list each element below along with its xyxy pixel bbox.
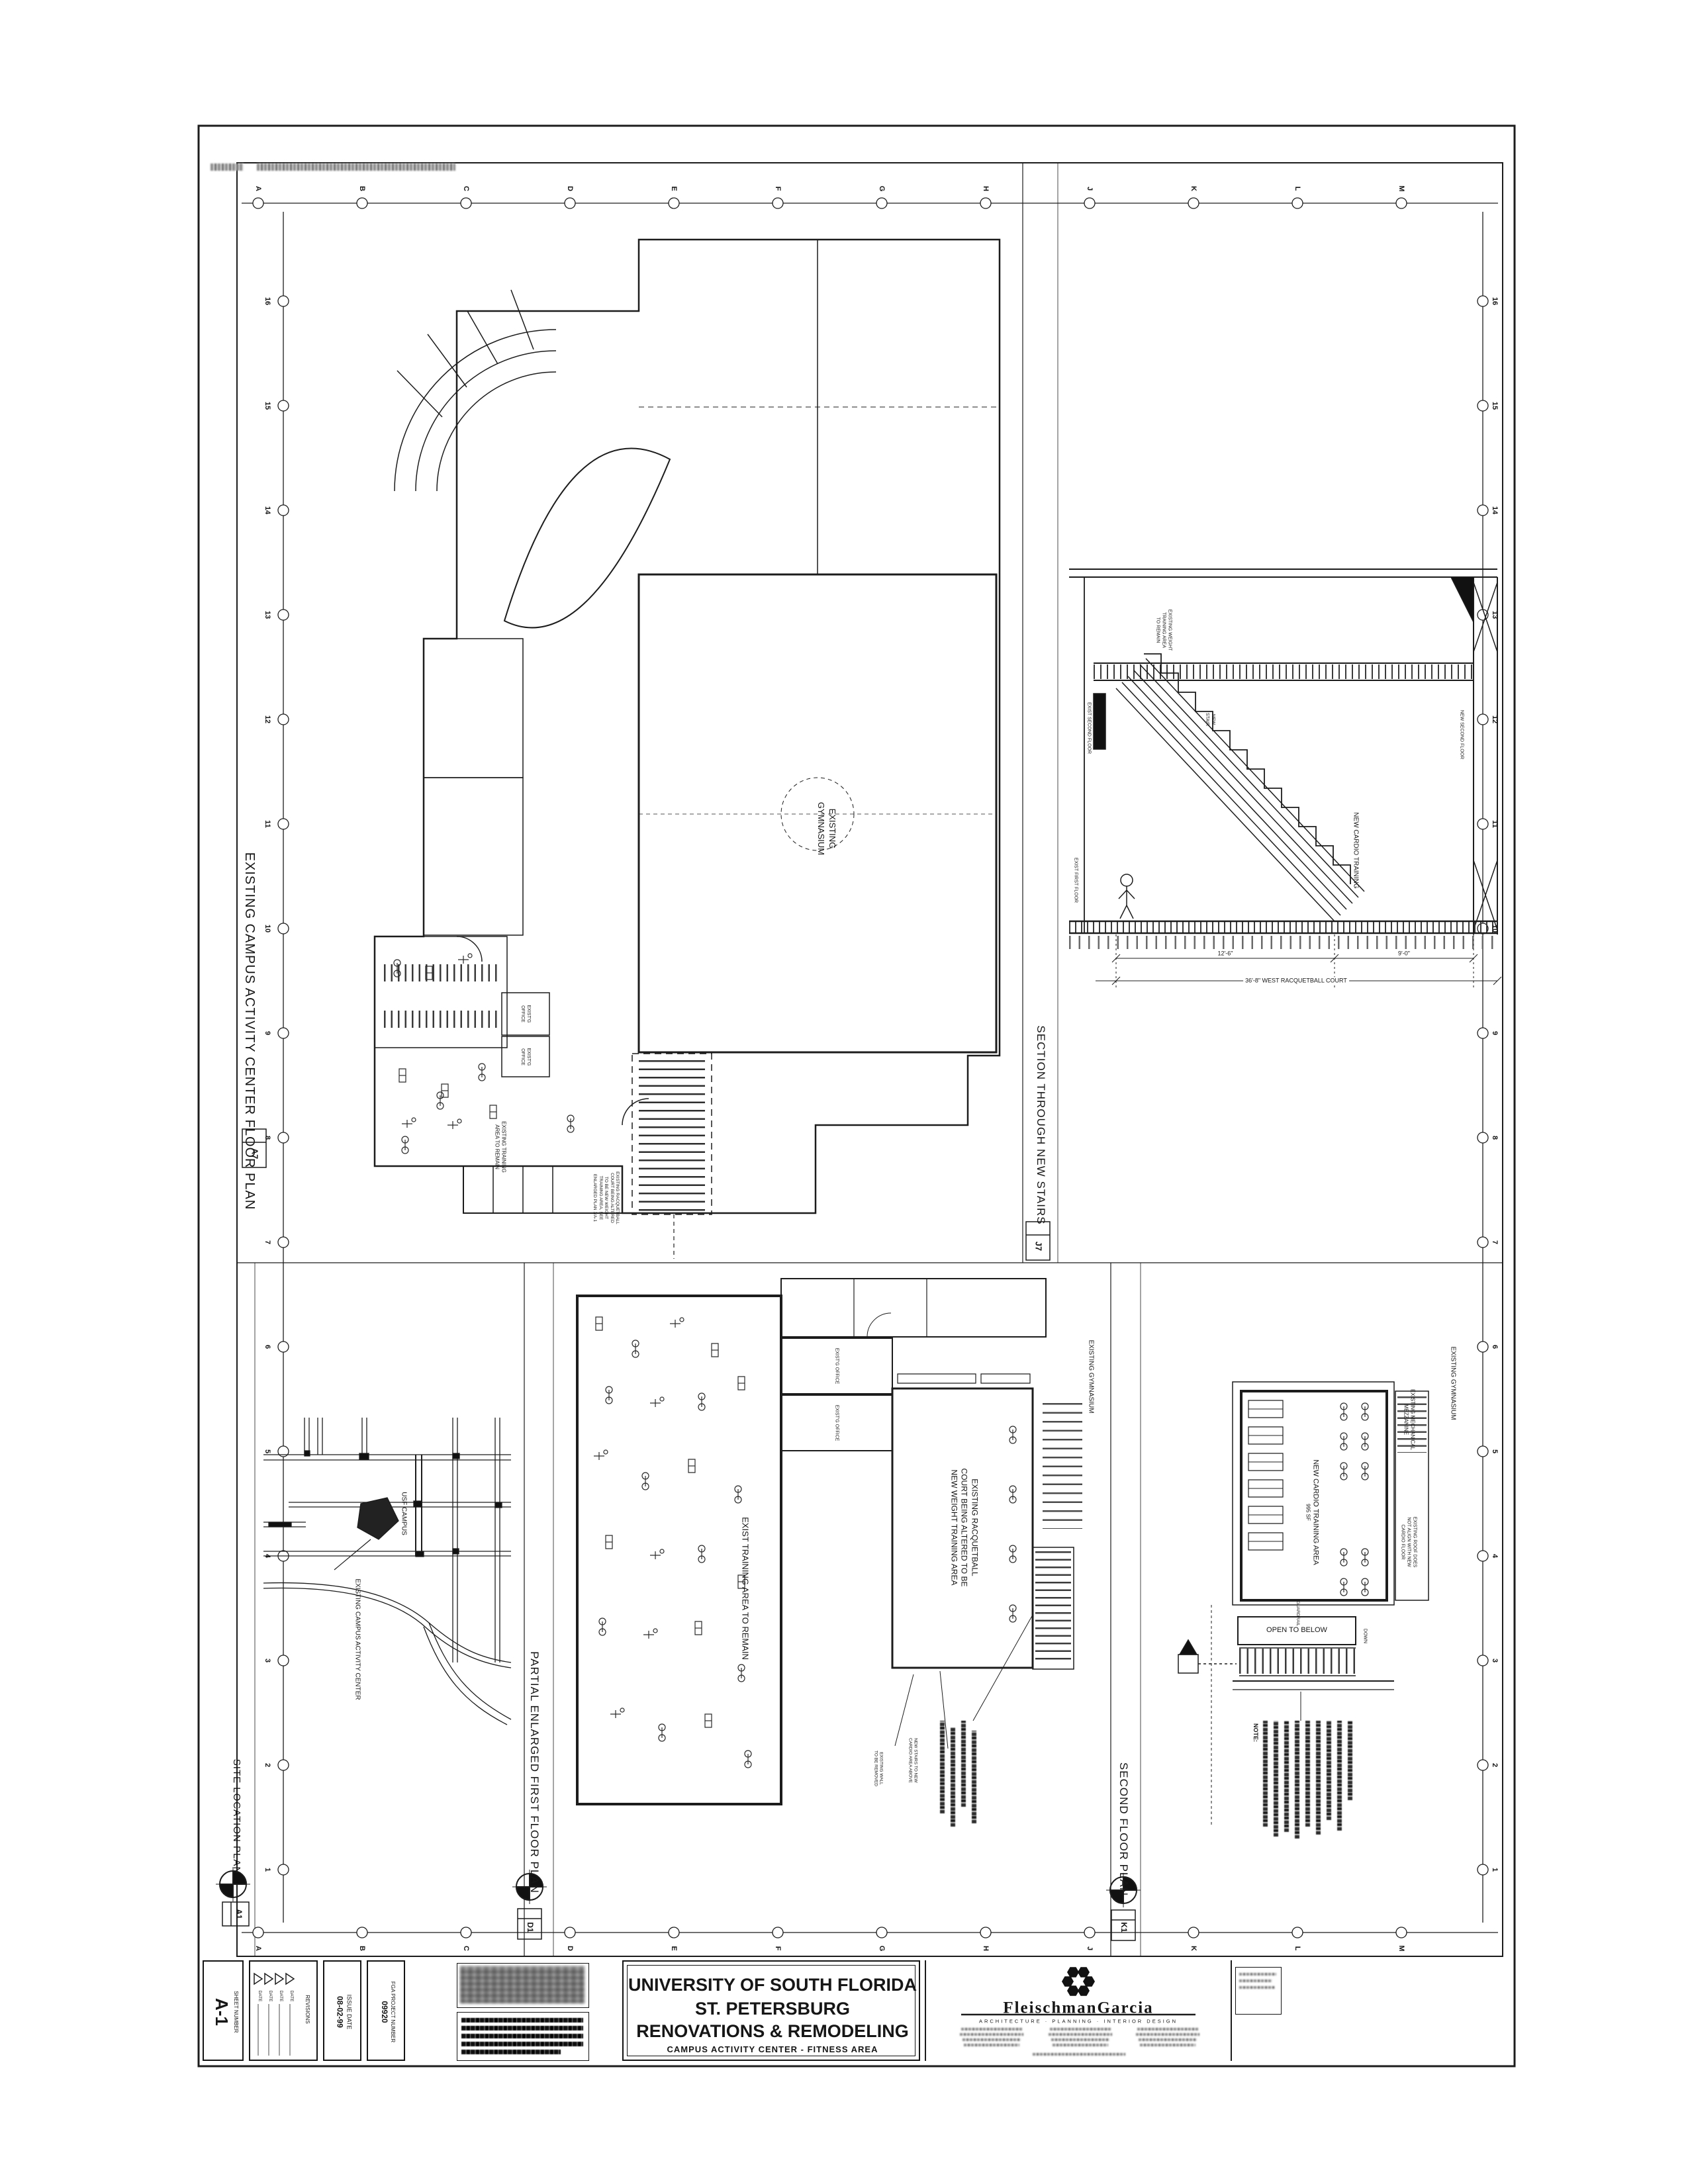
second-floor-drawing [1178,1382,1429,1827]
dim-label: 9'-0" [1396,950,1412,957]
illegible-note [961,1721,966,1807]
certification-box [457,2012,589,2061]
grid-letter: A [254,186,262,191]
project-title-line3: RENOVATIONS & REMODELING [636,2021,909,2043]
stairs-note: NEW STAIRS TO NEW CARDIO AREA ABOVE [907,1738,918,1783]
ref-bubble-label: J7 [1033,1242,1044,1251]
grid-letter: K [1190,186,1197,191]
issue-date-label: ISSUE DATE [345,1995,353,2030]
grid-letter: C [462,186,470,191]
ref-bubble-label: D1 [524,1922,535,1932]
grid-number: 1 [263,1868,271,1872]
grid-number: 12 [1491,715,1499,723]
down-label: DOWN [1362,1629,1368,1643]
certification-text [461,2050,561,2054]
court-label: EXISTING RACQUETBALL COURT BEING ALTERED… [949,1469,980,1587]
grid-number: 7 [263,1240,271,1244]
grid-number: 2 [1491,1763,1499,1767]
grid-letter: E [670,186,678,191]
note-header: NOTE: [1251,1723,1259,1742]
wall-note: EXISTING WALL TO BE REMOVED [872,1751,884,1786]
grid-letter: D [566,1946,574,1951]
grid-number: 11 [263,820,271,828]
existing-cac-label: EXISTING CAMPUS ACTIVITY CENTER [353,1578,362,1700]
north-arrows [216,1867,1141,1907]
ref-bubble-label: K1 [1118,1922,1129,1932]
grid-number: 14 [263,506,271,514]
grid-number: 3 [1491,1659,1499,1662]
certification-text [461,2026,583,2030]
grid-number: 7 [1491,1240,1499,1244]
grid-ticks [242,198,1498,1938]
gymnasium-label: EXISTING GYMNASIUM [1087,1340,1096,1413]
grid-number: 6 [1491,1345,1499,1349]
site-plan-title: SITE LOCATION PLAN [230,1759,243,1874]
date-label: DATE [278,1991,283,2002]
office-label: EXIST'G OFFICE [833,1348,839,1385]
new-cardio-label: NEW CARDIO TRAINING [1352,812,1360,888]
architect-stamp-box [457,1963,589,2008]
exist-second-floor-label: EXIST SECOND FLOOR [1086,702,1092,754]
grid-letter: M [1397,1945,1405,1951]
sheet-number-content: SHEET NUMBER A-1 [210,1991,239,2032]
train-area-label: EXIST TRAINING AREA TO REMAIN [739,1517,751,1660]
grid-number: 11 [1491,820,1499,828]
grid-letter: M [1397,185,1405,191]
project-subtitle: CAMPUS ACTIVITY CENTER - FITNESS AREA [667,2044,878,2055]
illegible-note [1305,1721,1310,1827]
grid-number: 2 [263,1763,271,1767]
grid-number: 15 [1491,402,1499,410]
grid-letter: B [358,1946,366,1951]
firm-tagline: ARCHITECTURE · PLANNING · INTERIOR DESIG… [979,2018,1178,2024]
training-area-label: EXISTING TRAINING AREA TO REMAIN [493,1121,507,1173]
firm-address [1051,2038,1109,2041]
guardrail-label: GUARDRAIL [1295,1601,1300,1626]
enlarged-plan-drawing [577,1279,1074,1804]
sheet-number: A-1 [210,1991,232,2032]
new-stair-label: NEW STAIR [1204,713,1216,726]
consultant-text [1239,1986,1275,1989]
dim-overall-label: 36'-8" WEST RACQUETBALL COURT [1243,977,1349,984]
grid-number: 10 [1491,925,1499,933]
grid-letter: B [358,186,366,191]
grid-number: 8 [1491,1136,1499,1140]
firm-address [1053,2044,1108,2046]
grid-number: 12 [263,715,271,723]
grid-number: 3 [263,1659,271,1662]
grid-letter: C [462,1946,470,1951]
grid-number: 15 [263,402,271,410]
ref-bubble-label: A1 [233,1909,244,1919]
firm-address [962,2038,1021,2041]
consultant-box [1235,1967,1282,2015]
date-label: DATE [267,1991,273,2002]
grid-letter: J [1086,187,1094,191]
plot-stamp-text [257,163,455,171]
plot-stamp-mark [211,163,244,171]
consultant-text [1239,1973,1276,1976]
firm-address [960,2033,1023,2036]
project-title-line1: UNIVERSITY OF SOUTH FLORIDA [628,1974,917,1997]
grid-number: 6 [263,1345,271,1349]
mezzanine-label: EXISTING MECHANICAL MEZZANINE [1402,1389,1416,1450]
reference-bubbles [222,1129,1135,1940]
illegible-note [972,1731,976,1823]
illegible-note [951,1727,955,1827]
firm-address [1136,2033,1199,2036]
firm-address [1050,2028,1111,2030]
floor-plan-drawing [375,240,1000,1259]
firm-address [964,2044,1019,2046]
grid-letter: K [1190,1946,1197,1951]
firm-address [1140,2044,1196,2046]
grid-number: 9 [1491,1031,1499,1035]
illegible-note [1263,1721,1268,1827]
firm-name: FleischmanGarcia [1003,1997,1153,2018]
issue-date-box: ISSUE DATE 08-02-99 [323,1960,361,2061]
architectural-sheet: A B C D E F G H J K L M A B C D E F G H … [0,0,1688,2184]
office-label: EXIST'G OFFICE [833,1405,839,1441]
site-plan-drawing [263,1418,511,1725]
certification-text [461,2042,583,2046]
grid-letter: A [254,1946,262,1951]
enlarged-plan-title: PARTIAL ENLARGED FIRST FLOOR PLAN [527,1651,541,1893]
issue-date: 08-02-99 [334,1995,345,2030]
grid-number: 13 [263,611,271,619]
illegible-note [1284,1721,1289,1832]
illegible-note [1295,1721,1299,1839]
grid-letter: J [1086,1946,1094,1950]
grid-number: 8 [263,1136,271,1140]
second-floor-title: SECOND FLOOR PLAN [1116,1762,1131,1896]
project-number: 09920 [379,1981,389,2042]
illegible-note [1337,1721,1342,1831]
grid-letter: F [774,1946,782,1951]
roof-note: EXISTING ROOF DOES NOT ALIGN WITH NEW CA… [1399,1517,1417,1568]
office-label: EXIST'G OFFICE [520,1048,532,1066]
date-label: DATE [257,1991,262,2002]
grid-number: 5 [1491,1449,1499,1453]
grid-number: 13 [1491,611,1499,619]
firm-footer [1033,2053,1125,2056]
project-number-content: FGA PROJECT NUMBER 09920 [379,1981,396,2042]
project-title-box: UNIVERSITY OF SOUTH FLORIDA ST. PETERSBU… [622,1960,920,2061]
grid-number: 5 [263,1449,271,1453]
firm-address [1137,2028,1198,2030]
firm-block: FleischmanGarcia ARCHITECTURE · PLANNING… [927,1960,1230,2061]
sheet-number-label: SHEET NUMBER [232,1991,239,2032]
grid-letter: L [1293,187,1301,191]
project-number-label: FGA PROJECT NUMBER [389,1981,396,2042]
grid-number: 4 [1491,1554,1499,1558]
gymnasium-label: EXISTING GYMNASIUM [1449,1346,1458,1420]
date-label: DATE [289,1991,294,2002]
cardio-area-label: NEW CARDIO TRAINING AREA 995 SF [1304,1459,1321,1565]
certification-text [461,2034,583,2038]
new-second-floor-label: NEW SECOND FLOOR [1458,710,1464,759]
grid-number: 4 [263,1554,271,1558]
existing-weight-label: EXISTING WEIGHT TRAINING AREA TO REMAIN [1154,610,1172,651]
grid-letter: F [774,187,782,191]
illegible-note [1348,1721,1352,1800]
dim-label: 12'-6" [1216,950,1235,957]
grid-letter: L [1293,1946,1301,1951]
grid-letter: D [566,186,574,191]
exist-first-floor-label: EXIST FIRST FLOOR [1072,858,1078,903]
firm-address [1139,2038,1197,2041]
grid-number: 10 [263,925,271,933]
certification-text [461,2018,583,2023]
firm-address [1049,2033,1112,2036]
grid-letter: G [878,1946,886,1952]
revisions-label: REVISIONS [304,1995,310,2024]
grid-number: 1 [1491,1868,1499,1872]
illegible-note [1316,1721,1321,1835]
illegible-note [1274,1721,1278,1837]
grid-letter: H [982,186,990,191]
area-dividers [237,163,1503,1956]
gym-label: EXISTING GYMNASIUM [815,802,837,855]
project-number-box: FGA PROJECT NUMBER 09920 [367,1960,405,2061]
firm-address [961,2028,1022,2030]
issue-date-content: ISSUE DATE 08-02-99 [334,1995,352,2030]
grid-number: 14 [1491,506,1499,514]
illegible-note [1327,1721,1331,1820]
grid-letter: G [878,186,886,192]
section-drawing [1069,569,1501,987]
consultant-text [1239,1979,1272,1982]
grid-letter: H [982,1946,990,1951]
architect-stamp [460,1966,585,2003]
grid-number: 16 [263,297,271,305]
ref-bubble-label: A7 [249,1148,260,1160]
grid-number: 9 [263,1031,271,1035]
revisions-box: REVISIONS DATE DATE DATE DATE [249,1960,318,2061]
grid-letter: E [670,1946,678,1950]
usf-campus-label: USF CAMPUS [400,1492,408,1535]
open-to-below-label: OPEN TO BELOW [1266,1626,1327,1635]
illegible-note [940,1721,945,1813]
project-title-line2: ST. PETERSBURG [695,1998,850,2021]
grid-number: 16 [1491,297,1499,305]
sheet-number-box: SHEET NUMBER A-1 [203,1960,244,2061]
racquetball-note: EXISTING RACQUETBALL COURT BEING ALTERED… [592,1171,620,1224]
section-title: SECTION THROUGH NEW STAIRS [1033,1025,1048,1224]
office-label: EXIST'G OFFICE [520,1005,532,1023]
